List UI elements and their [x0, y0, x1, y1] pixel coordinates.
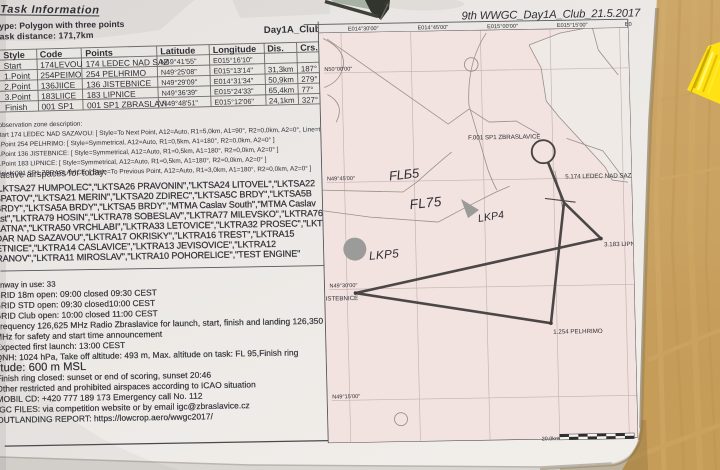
svg-text:ISTEBNICE: ISTEBNICE — [326, 295, 359, 303]
svg-text:183LIICE: 183LIICE — [41, 90, 77, 101]
svg-text:LKP5: LKP5 — [368, 246, 399, 263]
svg-text:F.001 SP1 ZBRASLAVICE: F.001 SP1 ZBRASLAVICE — [468, 133, 541, 141]
svg-text:E014°31'34": E014°31'34" — [214, 76, 254, 86]
svg-text:1.254 PELHRIMO: 1.254 PELHRIMO — [553, 328, 603, 336]
svg-text:N49°30'00": N49°30'00" — [329, 283, 357, 289]
svg-text:Longitude: Longitude — [213, 44, 257, 55]
svg-text:E015°15'00": E015°15'00" — [557, 23, 588, 30]
svg-text:5.174 LEDEC NAD SAZAV: 5.174 LEDEC NAD SAZAV — [565, 172, 640, 180]
svg-text:Code: Code — [40, 49, 63, 60]
svg-text:2.Point: 2.Point — [4, 81, 31, 92]
svg-text:Crs.: Crs. — [300, 42, 318, 52]
svg-text:3.Point: 3.Point — [4, 91, 31, 102]
svg-text:E014°30'00": E014°30'00" — [348, 26, 379, 33]
svg-text:FLБ5: FLБ5 — [388, 165, 421, 183]
svg-text:N49°25'08": N49°25'08" — [161, 67, 198, 77]
svg-text:279°: 279° — [301, 74, 317, 83]
svg-text:Latitude: Latitude — [160, 46, 195, 57]
svg-text:174LEVOU: 174LEVOU — [40, 59, 83, 70]
svg-text:Points: Points — [85, 48, 113, 59]
svg-text:254PEIMO: 254PEIMO — [40, 69, 82, 80]
svg-text:Day1A_Club: Day1A_Club — [264, 24, 321, 36]
svg-text:E015°00'00": E015°00'00" — [487, 24, 518, 31]
svg-text:N49°45'00": N49°45'00" — [327, 176, 355, 182]
svg-text:E015°24'33": E015°24'33" — [214, 86, 254, 96]
svg-text:N49°15'00": N49°15'00" — [332, 394, 360, 400]
svg-text:E015°13'14": E015°13'14" — [213, 66, 253, 76]
svg-text:77°: 77° — [301, 85, 313, 94]
svg-text:N49°36'39": N49°36'39" — [161, 88, 198, 98]
svg-text:E015°12'06": E015°12'06" — [214, 97, 254, 107]
svg-text:observation zone description:: observation zone description: — [0, 121, 83, 129]
svg-text:E015°16'10": E015°16'10" — [213, 55, 253, 65]
svg-text:327°: 327° — [302, 95, 318, 104]
svg-text:001 SP1 ZBRASLAVI: 001 SP1 ZBRASLAVI — [87, 98, 167, 110]
svg-text:183 LIPNICE: 183 LIPNICE — [86, 89, 136, 100]
svg-text:1.Point: 1.Point — [4, 71, 31, 82]
svg-text:Task distance: 171,7km: Task distance: 171,7km — [0, 30, 94, 42]
svg-text:136 JISTEBNICE: 136 JISTEBNICE — [86, 78, 152, 90]
svg-text:174 LEDEC NAD SAZ: 174 LEDEC NAD SAZ — [85, 57, 168, 69]
svg-text:N49°48'51": N49°48'51" — [162, 98, 199, 108]
svg-text:Dis.: Dis. — [267, 43, 284, 53]
svg-text:001 SP1: 001 SP1 — [41, 101, 74, 112]
svg-text:N49°41'55": N49°41'55" — [160, 57, 197, 67]
svg-text:E014°45'00": E014°45'00" — [417, 25, 448, 32]
svg-text:N50°00'00": N50°00'00" — [324, 67, 352, 73]
svg-text:50,9km: 50,9km — [268, 75, 294, 85]
svg-text:24,1km: 24,1km — [269, 96, 295, 106]
svg-text:Style: Style — [3, 50, 25, 61]
svg-text:187°: 187° — [301, 64, 317, 73]
svg-text:N49°29'09": N49°29'09" — [161, 77, 198, 87]
svg-text:65,4km: 65,4km — [268, 85, 294, 95]
svg-text:Start: Start — [3, 60, 22, 70]
svg-text:Finish: Finish — [5, 102, 28, 113]
svg-text:136JIICE: 136JIICE — [41, 80, 76, 91]
svg-text:31,3km: 31,3km — [268, 65, 294, 75]
